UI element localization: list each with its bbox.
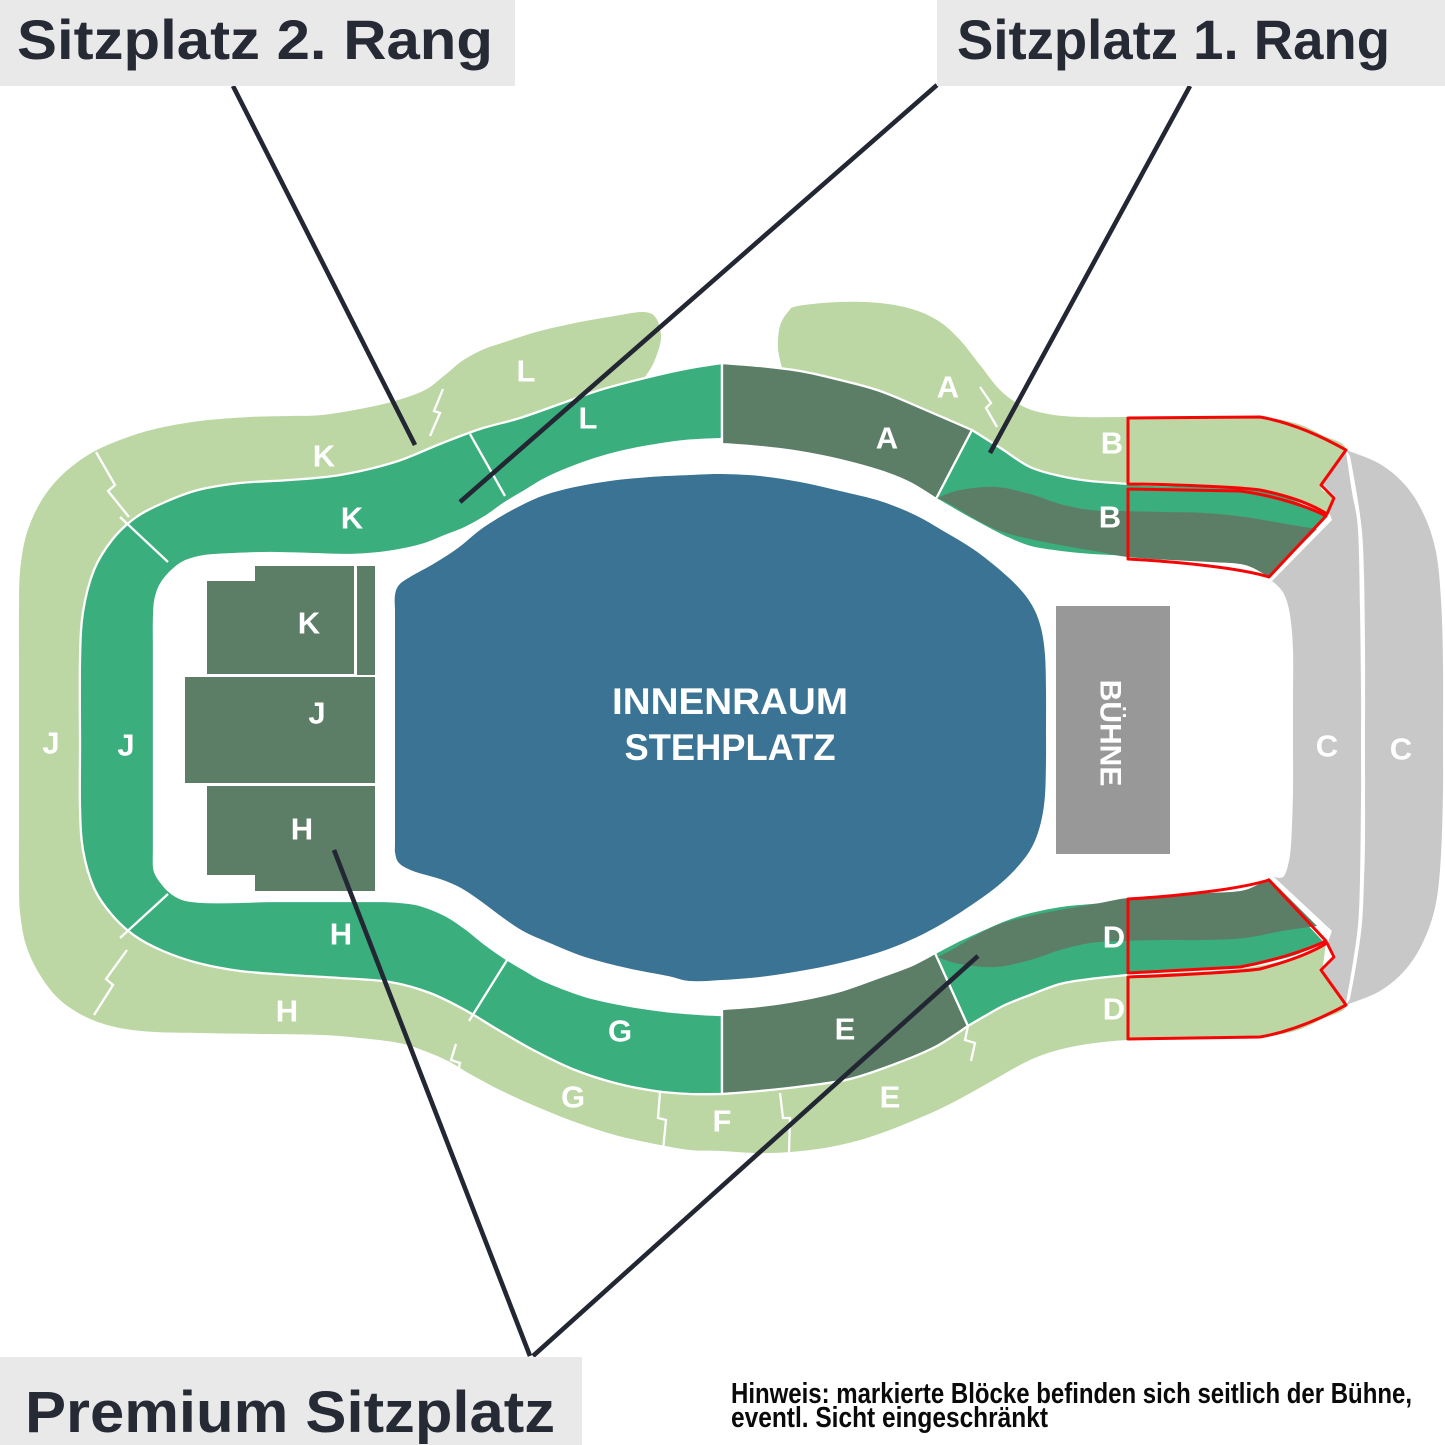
svg-text:INNENRAUM: INNENRAUM: [612, 681, 848, 722]
svg-text:E: E: [880, 1080, 901, 1115]
svg-text:BÜHNE: BÜHNE: [1094, 680, 1127, 787]
svg-text:B: B: [1099, 500, 1121, 535]
svg-text:J: J: [42, 726, 59, 761]
svg-text:Premium Sitzplatz: Premium Sitzplatz: [25, 1380, 555, 1445]
svg-text:K: K: [313, 439, 336, 474]
svg-text:A: A: [876, 421, 898, 456]
svg-text:J: J: [117, 728, 134, 763]
svg-text:F: F: [713, 1104, 732, 1139]
svg-text:eventl. Sicht eingeschränkt: eventl. Sicht eingeschränkt: [731, 1402, 1048, 1434]
svg-text:Sitzplatz 2. Rang: Sitzplatz 2. Rang: [17, 8, 493, 71]
svg-text:C: C: [1390, 732, 1412, 767]
svg-text:E: E: [835, 1012, 856, 1047]
svg-text:L: L: [579, 401, 598, 436]
svg-text:L: L: [517, 354, 536, 389]
svg-text:G: G: [561, 1080, 585, 1115]
svg-text:A: A: [937, 370, 959, 405]
svg-text:B: B: [1101, 426, 1123, 461]
svg-text:D: D: [1103, 992, 1125, 1027]
svg-text:STEHPLATZ: STEHPLATZ: [625, 727, 836, 768]
svg-text:J: J: [308, 696, 325, 731]
svg-text:H: H: [330, 917, 352, 952]
svg-text:H: H: [276, 994, 298, 1029]
svg-text:K: K: [341, 501, 364, 536]
svg-text:G: G: [608, 1014, 632, 1049]
svg-text:C: C: [1316, 729, 1338, 764]
svg-text:K: K: [298, 606, 321, 641]
svg-text:Sitzplatz 1. Rang: Sitzplatz 1. Rang: [957, 8, 1390, 71]
svg-text:D: D: [1103, 920, 1125, 955]
svg-text:H: H: [291, 812, 313, 847]
